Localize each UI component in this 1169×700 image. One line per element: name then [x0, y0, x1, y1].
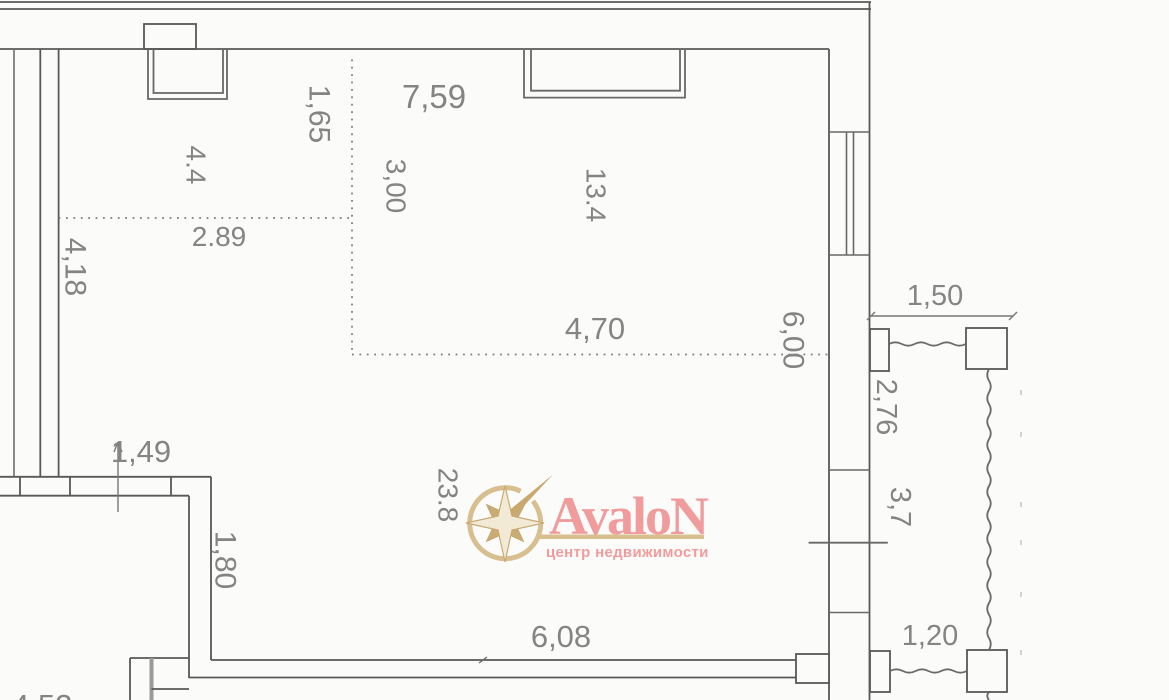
svg-text:13.4: 13.4	[581, 168, 612, 223]
svg-text:2,76: 2,76	[870, 379, 902, 435]
svg-text:центр недвижимости: центр недвижимости	[546, 544, 709, 561]
svg-text:4.4: 4.4	[181, 146, 212, 185]
svg-text:1,80: 1,80	[209, 531, 242, 589]
svg-text:2.89: 2.89	[192, 221, 247, 252]
svg-text:4,52: 4,52	[12, 688, 72, 700]
svg-text:6,08: 6,08	[531, 619, 591, 654]
svg-text:4,18: 4,18	[59, 238, 92, 296]
svg-text:1,49: 1,49	[111, 434, 171, 469]
svg-text:1,65: 1,65	[303, 85, 336, 143]
svg-text:4,70: 4,70	[565, 311, 625, 346]
svg-text:AvaloN: AvaloN	[549, 486, 709, 546]
svg-text:23.8: 23.8	[433, 468, 464, 523]
svg-text:6,00: 6,00	[777, 311, 810, 369]
svg-text:7,59: 7,59	[402, 78, 466, 115]
svg-text:3,00: 3,00	[381, 159, 412, 214]
svg-text:3,7: 3,7	[884, 487, 916, 527]
svg-text:1,50: 1,50	[907, 280, 963, 312]
svg-text:1,20: 1,20	[902, 620, 958, 652]
